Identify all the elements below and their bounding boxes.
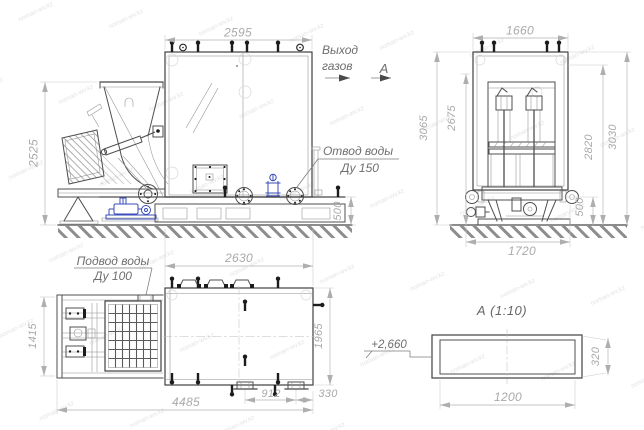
svg-text:А: А <box>379 61 389 76</box>
grate-basket <box>62 130 104 184</box>
svg-text:1200: 1200 <box>494 390 522 404</box>
svg-text:500: 500 <box>574 197 586 217</box>
ground-front <box>58 225 352 238</box>
svg-text:1965: 1965 <box>313 323 325 349</box>
ground-side <box>450 225 627 238</box>
svg-text:+2,660: +2,660 <box>371 339 407 351</box>
svg-text:1660: 1660 <box>506 24 534 38</box>
svg-text:2675: 2675 <box>446 105 458 132</box>
section-title: А (1:10) <box>476 303 527 318</box>
svg-text:2525: 2525 <box>27 139 41 168</box>
svg-text:газов: газов <box>322 59 353 73</box>
svg-text:1720: 1720 <box>508 244 536 258</box>
svg-text:4485: 4485 <box>172 395 200 409</box>
drawing-sheet: noman-wv.kz noman-wv.kz <box>0 0 644 430</box>
technical-drawing: noman-wv.kz noman-wv.kz <box>0 0 644 430</box>
svg-text:3065: 3065 <box>418 115 430 141</box>
svg-text:1415: 1415 <box>27 323 39 349</box>
svg-text:2630: 2630 <box>224 251 253 265</box>
svg-text:Выход: Выход <box>322 43 358 57</box>
svg-text:500: 500 <box>332 201 344 221</box>
svg-text:2820: 2820 <box>583 134 595 161</box>
svg-text:912: 912 <box>261 388 280 400</box>
svg-text:Ду 100: Ду 100 <box>92 269 132 283</box>
svg-text:Ду 150: Ду 150 <box>339 161 379 175</box>
svg-text:3030: 3030 <box>607 124 619 150</box>
svg-text:330: 330 <box>318 388 338 400</box>
svg-text:Подвод воды: Подвод воды <box>77 254 150 268</box>
svg-text:Отвод воды: Отвод воды <box>323 144 393 158</box>
svg-text:320: 320 <box>590 346 602 366</box>
svg-text:2595: 2595 <box>223 26 252 40</box>
